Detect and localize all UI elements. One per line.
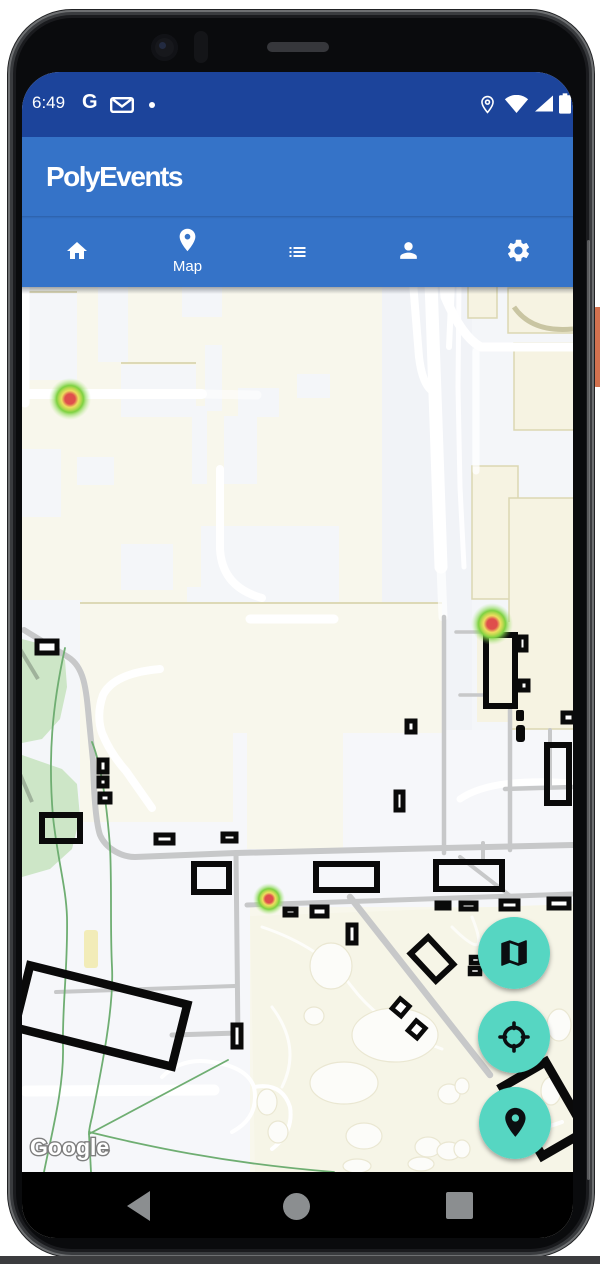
svg-text:Google: Google — [30, 1134, 109, 1160]
